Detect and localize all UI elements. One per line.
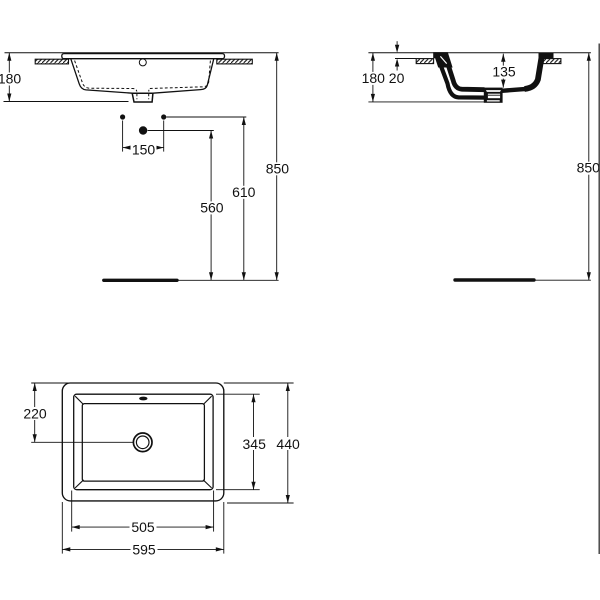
svg-text:180: 180 xyxy=(0,71,21,87)
svg-text:220: 220 xyxy=(23,406,47,422)
svg-text:505: 505 xyxy=(131,519,155,535)
svg-text:850: 850 xyxy=(266,160,290,176)
svg-text:135: 135 xyxy=(492,64,516,80)
svg-text:180: 180 xyxy=(362,70,386,86)
svg-text:150: 150 xyxy=(132,142,156,158)
svg-text:560: 560 xyxy=(200,199,224,215)
svg-text:345: 345 xyxy=(243,436,267,452)
svg-text:850: 850 xyxy=(577,160,600,176)
svg-text:595: 595 xyxy=(132,541,156,557)
svg-text:610: 610 xyxy=(232,184,256,200)
svg-text:440: 440 xyxy=(276,436,300,452)
svg-text:20: 20 xyxy=(389,70,405,86)
